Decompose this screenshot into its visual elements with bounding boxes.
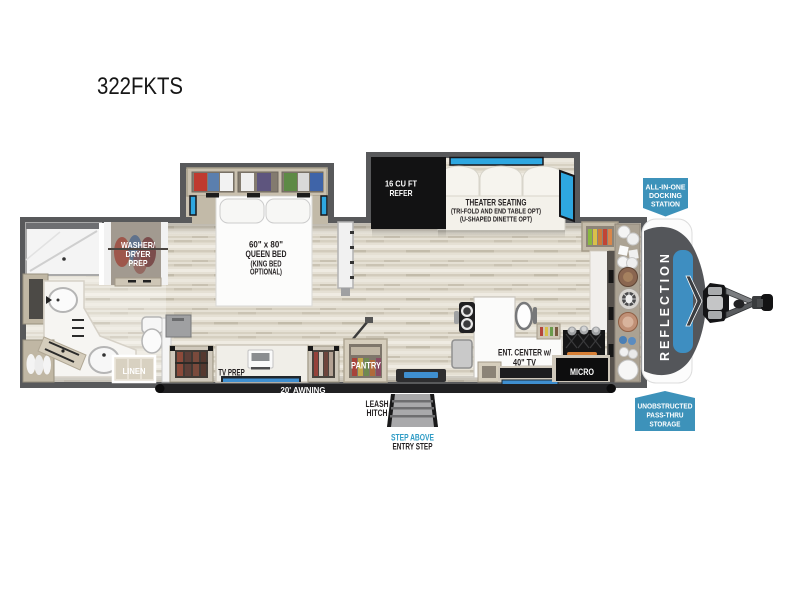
svg-text:322FKTS: 322FKTS [97, 73, 183, 100]
svg-text:ENTRY STEP: ENTRY STEP [393, 442, 433, 452]
svg-text:PASS-THRU: PASS-THRU [647, 411, 684, 420]
svg-text:PREP: PREP [129, 258, 148, 268]
svg-text:16 CU FT: 16 CU FT [385, 179, 418, 189]
svg-text:STORAGE: STORAGE [650, 420, 681, 429]
svg-text:TV PREP: TV PREP [218, 368, 245, 378]
svg-text:QUEEN BED: QUEEN BED [246, 249, 287, 260]
svg-text:OPTIONAL): OPTIONAL) [250, 268, 282, 277]
svg-text:40" TV: 40" TV [513, 357, 536, 367]
svg-text:PANTRY: PANTRY [351, 361, 381, 371]
svg-text:MICRO: MICRO [570, 367, 594, 377]
svg-text:REFLECTION: REFLECTION [658, 251, 672, 361]
svg-text:(U-SHAPED DINETTE OPT): (U-SHAPED DINETTE OPT) [460, 215, 532, 224]
svg-text:HITCH: HITCH [367, 408, 388, 418]
svg-text:REFER: REFER [390, 188, 413, 198]
svg-text:20' AWNING: 20' AWNING [281, 385, 326, 395]
svg-text:STATION: STATION [651, 199, 680, 208]
svg-text:UNOBSTRUCTED: UNOBSTRUCTED [638, 402, 694, 411]
svg-text:LINEN: LINEN [123, 366, 146, 376]
svg-text:ENT. CENTER w/: ENT. CENTER w/ [498, 348, 551, 358]
